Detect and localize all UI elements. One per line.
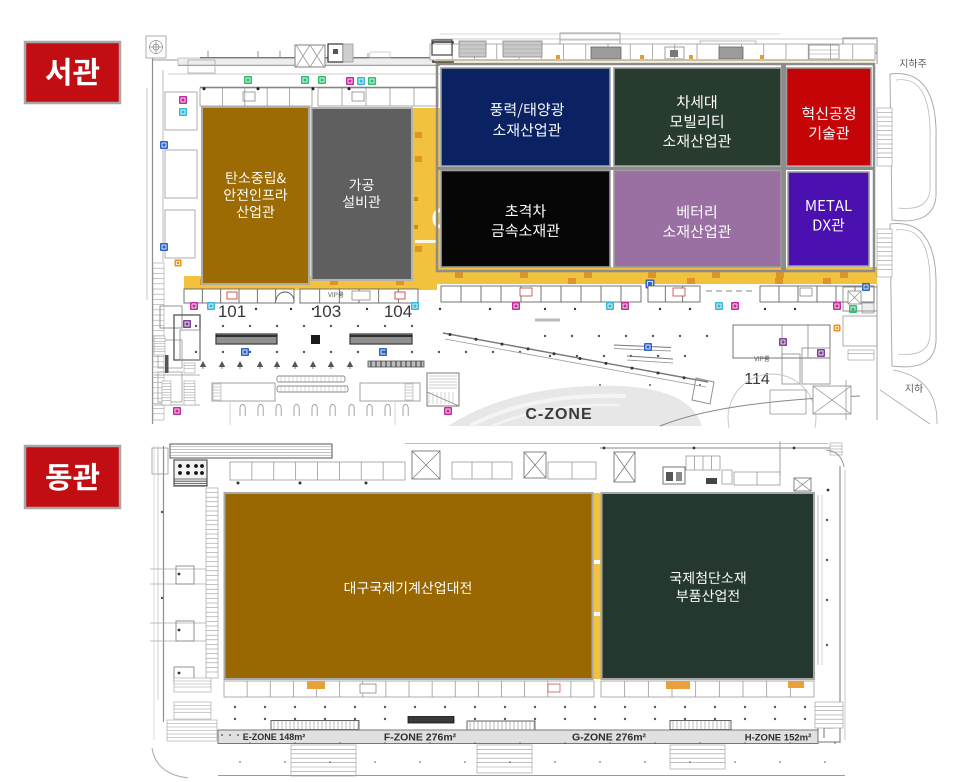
svg-text:F-ZONE 276m²: F-ZONE 276m² bbox=[384, 732, 457, 744]
svg-text:E-ZONE 148m²: E-ZONE 148m² bbox=[243, 732, 306, 742]
svg-text:H-ZONE 152m²: H-ZONE 152m² bbox=[745, 733, 812, 744]
svg-text:G-ZONE 276m²: G-ZONE 276m² bbox=[572, 732, 647, 744]
svg-text:C-ZONE: C-ZONE bbox=[525, 406, 592, 423]
svg-text:103: 103 bbox=[313, 302, 341, 321]
svg-text:104: 104 bbox=[384, 302, 412, 321]
svg-text:114: 114 bbox=[744, 371, 770, 388]
svg-text:101: 101 bbox=[218, 302, 246, 321]
